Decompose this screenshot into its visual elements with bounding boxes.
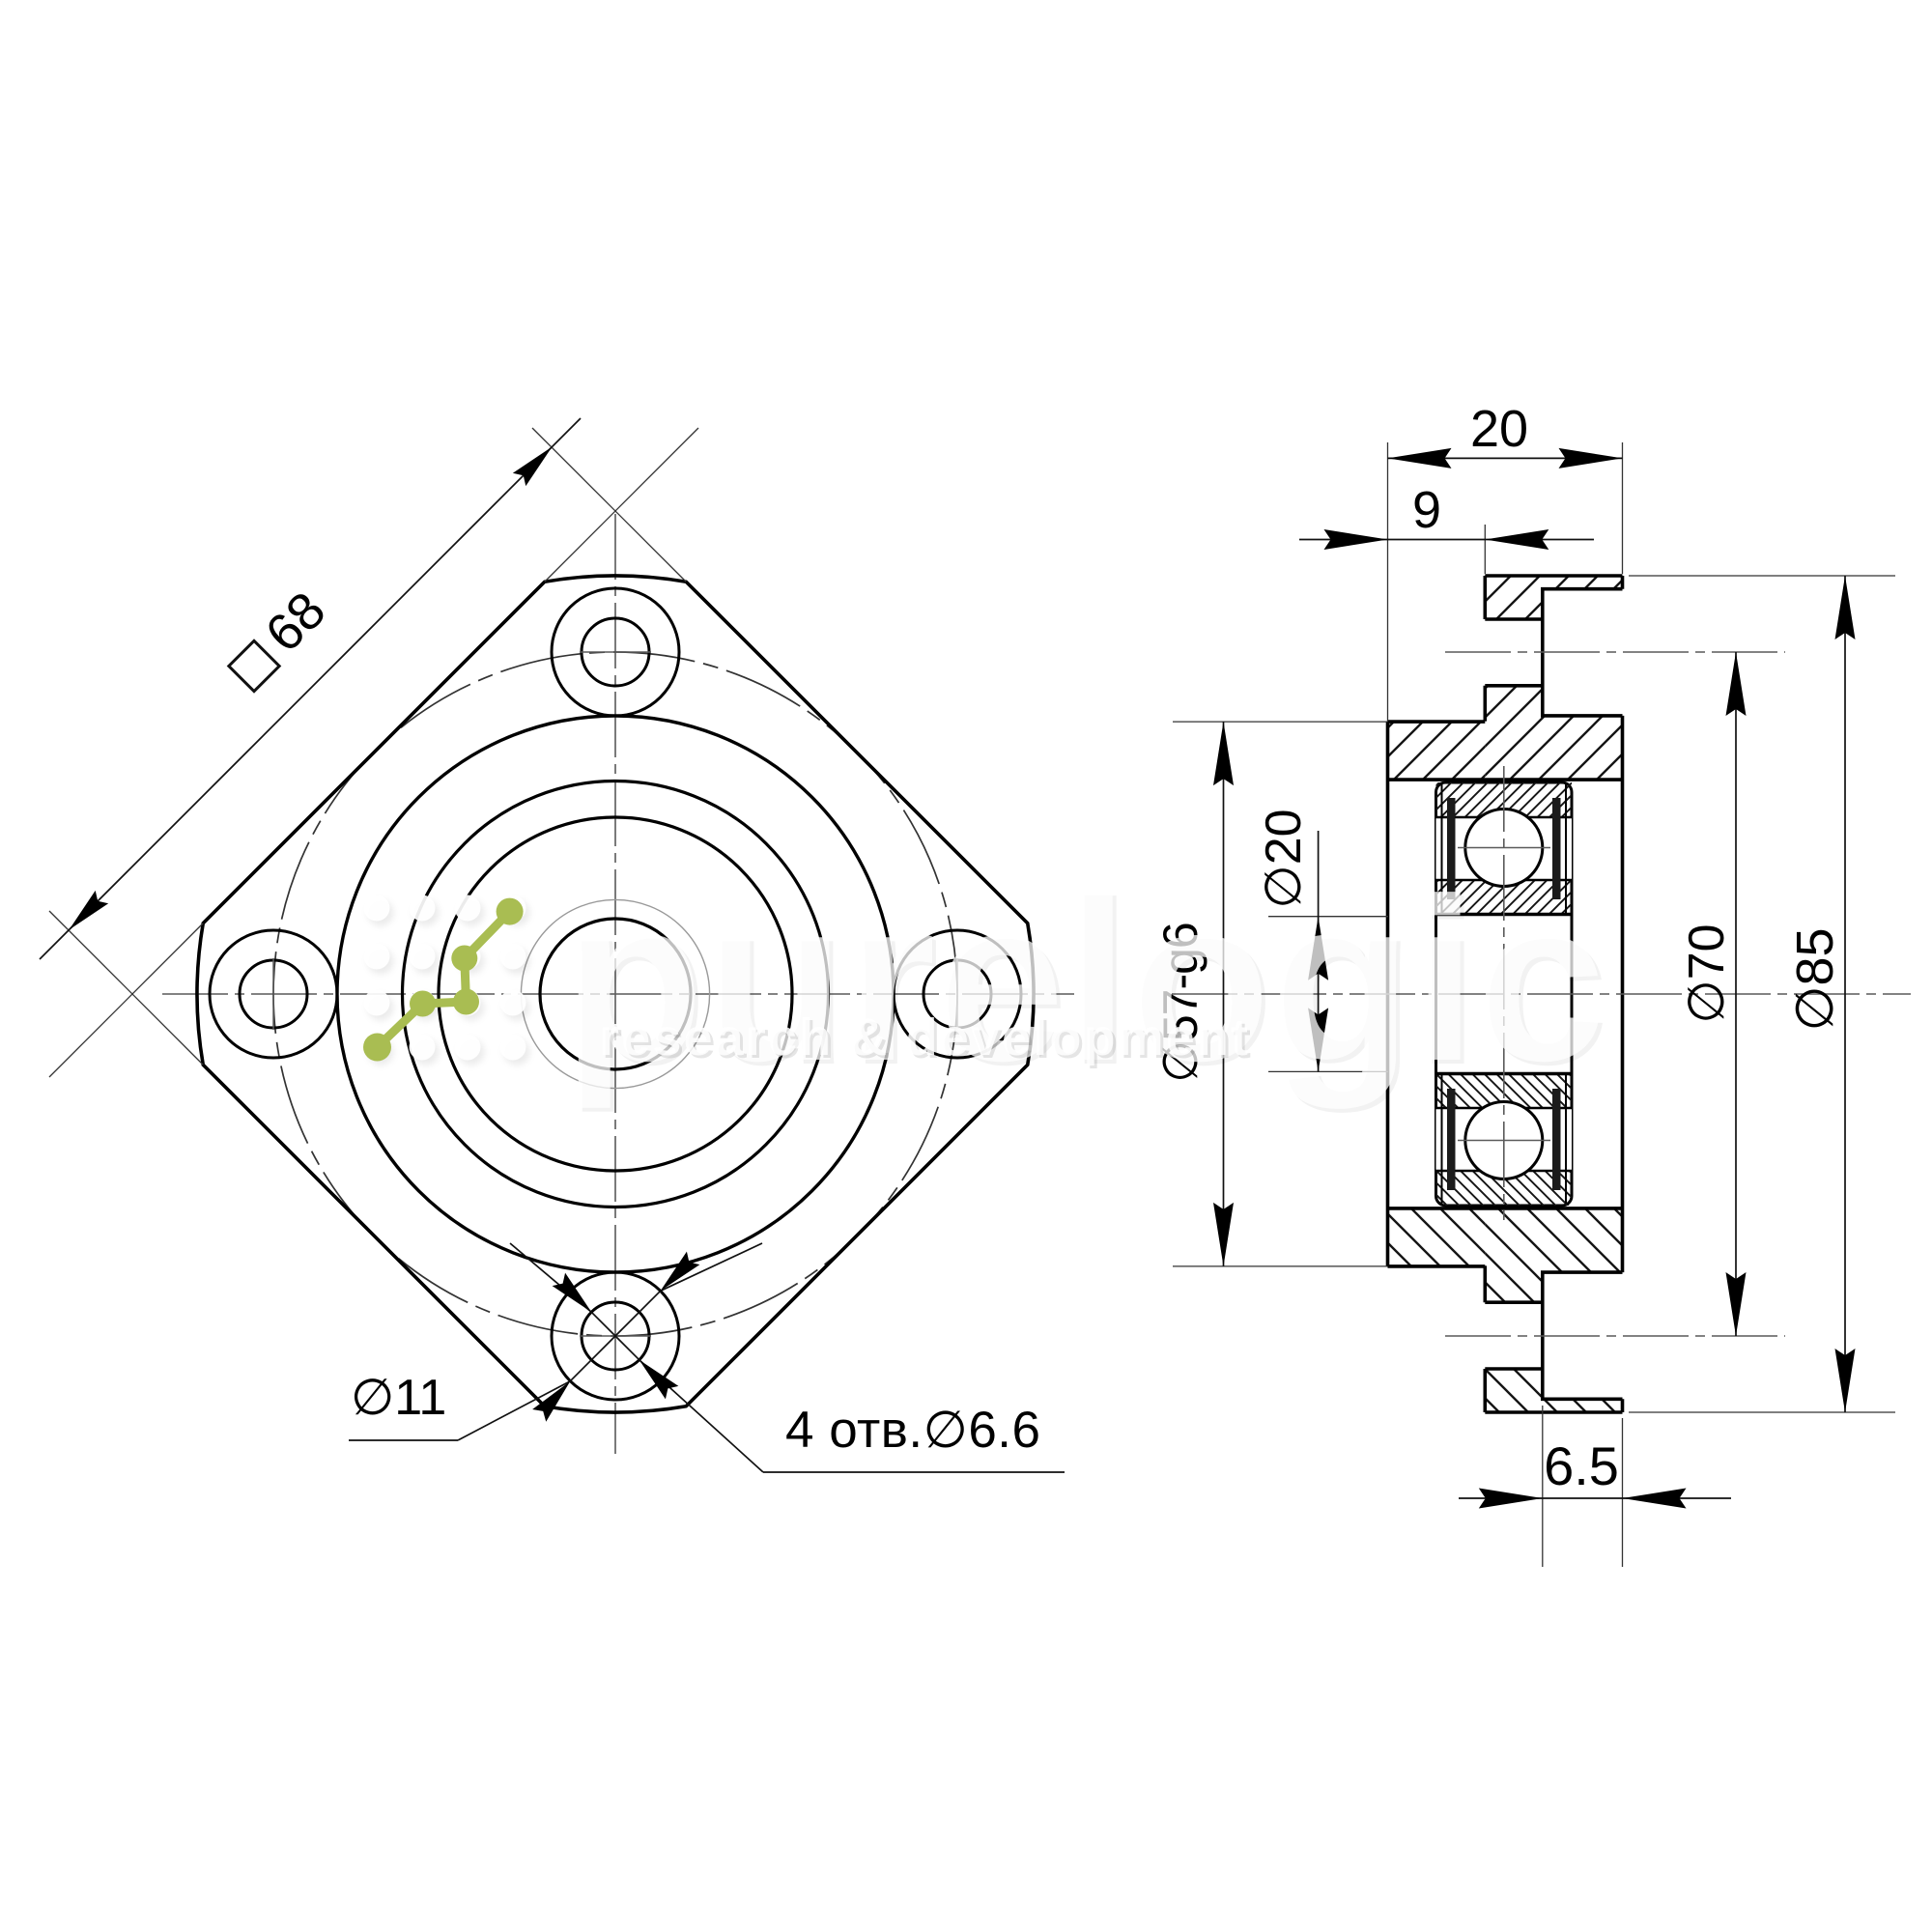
svg-text:9: 9 xyxy=(1412,481,1441,539)
svg-text:research & development: research & development xyxy=(599,1009,1248,1066)
svg-text:purelogic: purelogic xyxy=(562,850,1605,1109)
svg-text:∅11: ∅11 xyxy=(351,1370,446,1426)
svg-text:4 отв.∅6.6: 4 отв.∅6.6 xyxy=(785,1402,1040,1459)
svg-text:20: 20 xyxy=(1470,400,1528,458)
svg-text:6.5: 6.5 xyxy=(1544,1435,1619,1496)
svg-text:∅70: ∅70 xyxy=(1679,923,1735,1023)
svg-text:∅85: ∅85 xyxy=(1786,927,1844,1031)
